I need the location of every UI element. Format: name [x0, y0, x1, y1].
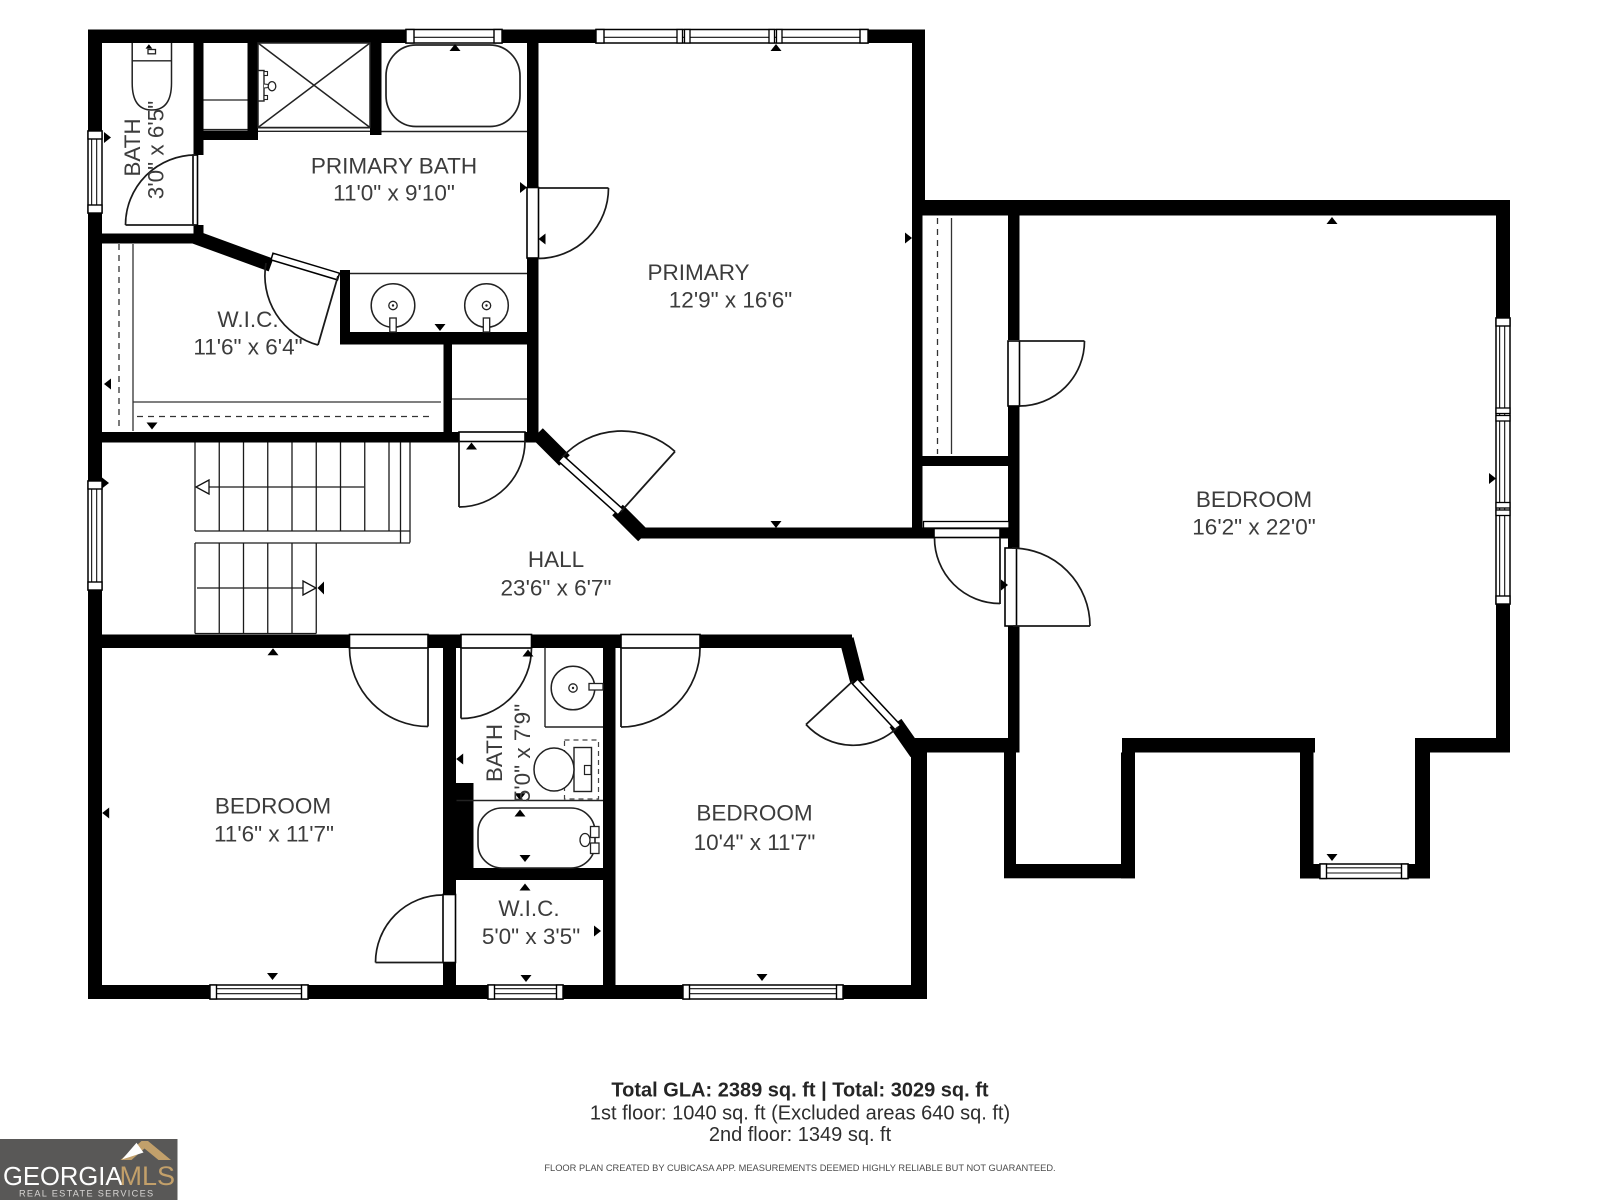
svg-text:23'6" x 6'7": 23'6" x 6'7"	[501, 576, 612, 601]
svg-text:10'4" x 11'7": 10'4" x 11'7"	[694, 830, 816, 855]
svg-text:BATH: BATH	[120, 118, 145, 176]
svg-text:PRIMARY: PRIMARY	[647, 260, 749, 285]
svg-text:11'0" x 9'10": 11'0" x 9'10"	[333, 181, 455, 206]
svg-text:W.I.C.: W.I.C.	[217, 307, 278, 332]
svg-text:1st floor: 1040 sq. ft (Exclud: 1st floor: 1040 sq. ft (Excluded areas 6…	[590, 1103, 1010, 1125]
svg-text:HALL: HALL	[528, 547, 584, 572]
svg-text:PRIMARY BATH: PRIMARY BATH	[311, 154, 477, 179]
svg-text:BEDROOM: BEDROOM	[215, 794, 331, 819]
svg-text:MLS: MLS	[120, 1161, 176, 1191]
svg-text:GEORGIA: GEORGIA	[3, 1163, 123, 1191]
svg-text:12'9" x 16'6": 12'9" x 16'6"	[669, 288, 792, 313]
svg-text:BEDROOM: BEDROOM	[696, 801, 812, 826]
svg-text:W.I.C.: W.I.C.	[498, 896, 559, 921]
svg-text:REAL ESTATE SERVICES: REAL ESTATE SERVICES	[19, 1189, 154, 1199]
svg-text:Total GLA: 2389 sq. ft | Total: Total GLA: 2389 sq. ft | Total: 3029 sq.…	[611, 1080, 988, 1102]
svg-text:11'6" x 6'4": 11'6" x 6'4"	[193, 335, 302, 360]
svg-text:BATH: BATH	[482, 724, 507, 782]
svg-text:BEDROOM: BEDROOM	[1196, 487, 1312, 512]
svg-text:FLOOR PLAN CREATED BY CUBICASA: FLOOR PLAN CREATED BY CUBICASA APP. MEAS…	[544, 1163, 1055, 1173]
svg-text:3'0" x 6'5": 3'0" x 6'5"	[144, 101, 169, 199]
svg-text:16'2" x 22'0": 16'2" x 22'0"	[1192, 515, 1315, 540]
svg-text:5'0" x 3'5": 5'0" x 3'5"	[482, 924, 580, 949]
svg-text:5'0" x 7'9": 5'0" x 7'9"	[510, 704, 535, 802]
svg-text:2nd floor: 1349 sq. ft: 2nd floor: 1349 sq. ft	[709, 1124, 892, 1146]
svg-text:11'6" x 11'7": 11'6" x 11'7"	[214, 822, 334, 847]
